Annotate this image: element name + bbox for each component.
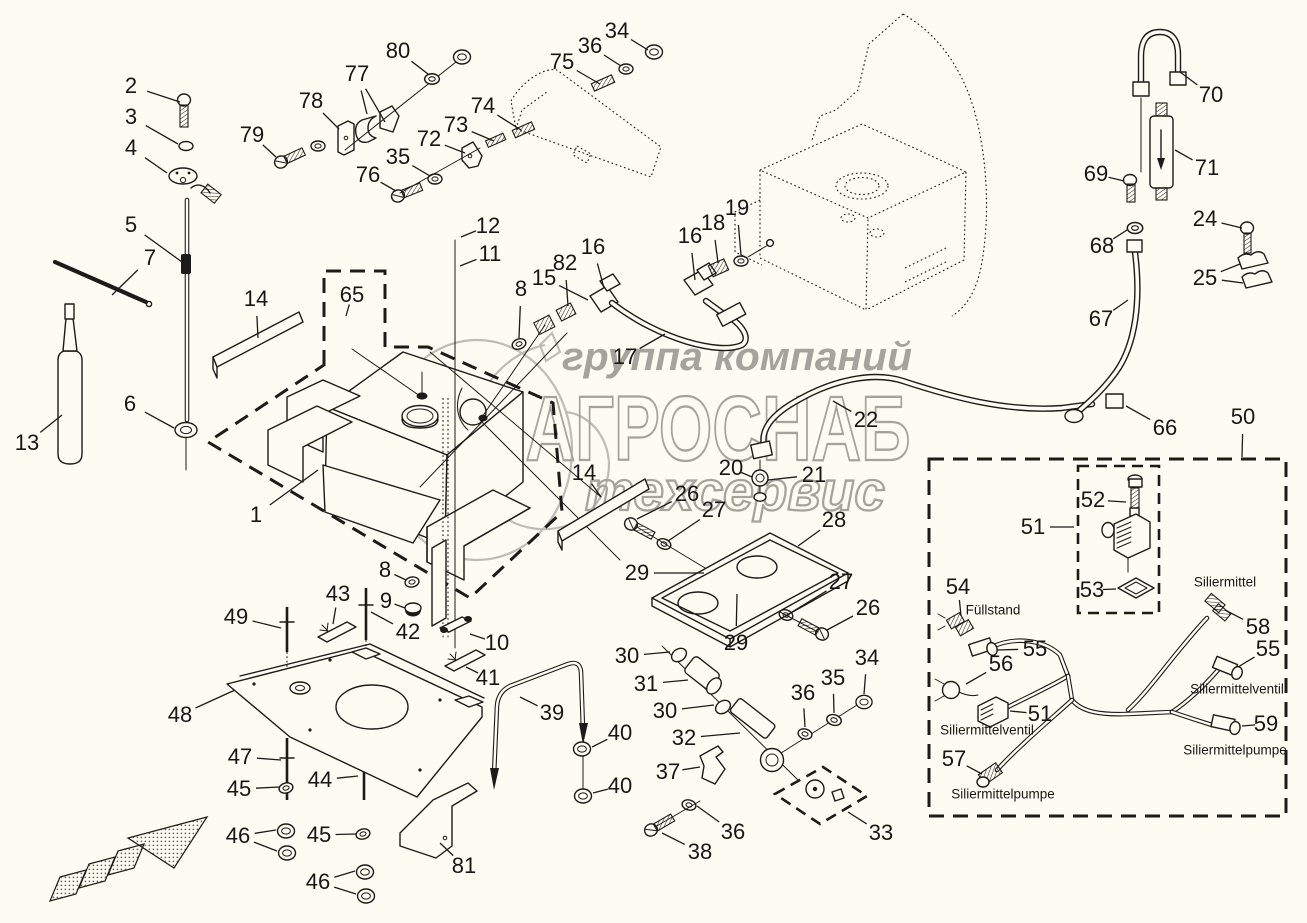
part-label: Füllstand (966, 603, 1021, 617)
callout-76: 76 (356, 164, 380, 186)
callout-24: 24 (1193, 208, 1217, 230)
callout-82: 82 (553, 252, 577, 274)
callout-71: 71 (1195, 157, 1219, 179)
callout-14: 14 (244, 288, 268, 310)
callout-55: 55 (1256, 638, 1280, 660)
callout-52: 52 (1081, 489, 1105, 511)
callout-49: 49 (224, 606, 248, 628)
callout-39: 39 (540, 702, 564, 724)
callout-6: 6 (124, 393, 136, 415)
callout-30: 30 (615, 645, 639, 667)
diagram-canvas: группа компаний АГРОСНАБ техсервис (0, 0, 1307, 923)
callout-40: 40 (608, 722, 632, 744)
callout-8: 8 (379, 559, 391, 581)
sealant-tube-13 (58, 304, 82, 464)
callout-27: 27 (702, 499, 726, 521)
callout-75: 75 (550, 51, 574, 73)
callout-58: 58 (1246, 616, 1270, 638)
callout-36: 36 (721, 821, 745, 843)
callout-55: 55 (1023, 638, 1047, 660)
callout-35: 35 (386, 146, 410, 168)
part-label: Siliermittelventil (1190, 682, 1284, 696)
parts-diagram-page: { "page": { "background": "#fcfcf2" }, "… (0, 0, 1307, 923)
callout-36: 36 (578, 35, 602, 57)
callout-5: 5 (125, 214, 137, 236)
callout-16: 16 (581, 236, 605, 258)
callout-78: 78 (299, 90, 323, 112)
callout-20: 20 (719, 457, 743, 479)
callout-19: 19 (725, 197, 749, 219)
callout-16: 16 (678, 225, 702, 247)
callout-66: 66 (1153, 417, 1177, 439)
callout-56: 56 (989, 653, 1013, 675)
part-label: Siliermittelpumpe (951, 787, 1055, 801)
callout-51: 51 (1021, 516, 1045, 538)
pipe-70-valve-71 (1124, 32, 1187, 202)
callout-46: 46 (226, 825, 250, 847)
callout-50: 50 (1231, 406, 1255, 428)
tank-fittings-16-18-19 (684, 245, 768, 295)
callout-29: 29 (724, 632, 748, 654)
callout-45: 45 (307, 824, 331, 846)
callout-2: 2 (125, 75, 137, 97)
callout-12: 12 (476, 215, 500, 237)
combine-body-outline (735, 14, 987, 316)
callout-29: 29 (625, 562, 649, 584)
callout-34: 34 (855, 647, 879, 669)
callout-38: 38 (688, 841, 712, 863)
callout-4: 4 (125, 137, 137, 159)
plate-14-left (213, 312, 303, 378)
callout-47: 47 (228, 746, 252, 768)
callout-40: 40 (608, 775, 632, 797)
connector-57 (977, 763, 1002, 787)
callout-17: 17 (613, 346, 637, 368)
callout-45: 45 (227, 778, 251, 800)
callout-77: 77 (345, 63, 369, 85)
part-label: Siliermittelventil (940, 723, 1034, 737)
callout-11: 11 (479, 243, 502, 265)
callout-31: 31 (634, 673, 658, 695)
callout-7: 7 (144, 247, 156, 269)
part-label: Siliermittelpumpe (1183, 743, 1287, 757)
callout-27: 27 (829, 571, 853, 593)
callout-69: 69 (1084, 163, 1108, 185)
callout-26: 26 (675, 483, 699, 505)
callout-41: 41 (476, 667, 500, 689)
connector-56 (935, 679, 978, 701)
callout-10: 10 (485, 632, 509, 654)
callout-37: 37 (656, 761, 680, 783)
callout-30: 30 (653, 700, 677, 722)
callout-65: 65 (340, 284, 364, 306)
callout-57: 57 (942, 748, 966, 770)
callout-32: 32 (672, 727, 696, 749)
callout-8: 8 (515, 278, 527, 300)
callout-21: 21 (802, 464, 826, 486)
callout-25: 25 (1193, 267, 1217, 289)
connector-59 (1211, 715, 1241, 736)
callout-36: 36 (791, 682, 815, 704)
callout-28: 28 (822, 509, 846, 531)
kit-box-50 (929, 459, 1286, 816)
connector-55b (1213, 656, 1245, 681)
part-label: Siliermittel (1194, 575, 1256, 589)
callout-18: 18 (701, 212, 725, 234)
callout-54: 54 (946, 576, 970, 598)
callout-48: 48 (168, 704, 192, 726)
callout-13: 13 (15, 432, 39, 454)
callout-74: 74 (471, 95, 495, 117)
callout-22: 22 (854, 409, 878, 431)
callout-9: 9 (380, 590, 392, 612)
callout-80: 80 (386, 40, 410, 62)
callout-73: 73 (444, 114, 468, 136)
callout-72: 72 (417, 128, 441, 150)
callout-26: 26 (856, 597, 880, 619)
dipstick-assembly (169, 94, 221, 470)
callout-34: 34 (605, 20, 629, 42)
screw-24-clamps-25 (1238, 222, 1272, 288)
callout-67: 67 (1089, 308, 1113, 330)
cover-plate-outline (511, 70, 661, 177)
callout-35: 35 (821, 667, 845, 689)
callout-53: 53 (1080, 579, 1104, 601)
callout-42: 42 (396, 621, 420, 643)
callout-44: 44 (308, 769, 332, 791)
callout-81: 81 (452, 855, 476, 877)
callout-14: 14 (572, 462, 596, 484)
callout-70: 70 (1199, 84, 1223, 106)
u-rod-39 (490, 663, 592, 803)
rod-7 (55, 262, 152, 307)
direction-arrow (50, 817, 207, 901)
callout-68: 68 (1090, 235, 1114, 257)
callout-3: 3 (125, 106, 137, 128)
callout-33: 33 (869, 822, 893, 844)
callout-59: 59 (1254, 713, 1278, 735)
callout-43: 43 (326, 583, 350, 605)
callout-46: 46 (306, 871, 330, 893)
callout-79: 79 (240, 124, 264, 146)
callout-1: 1 (250, 504, 262, 526)
